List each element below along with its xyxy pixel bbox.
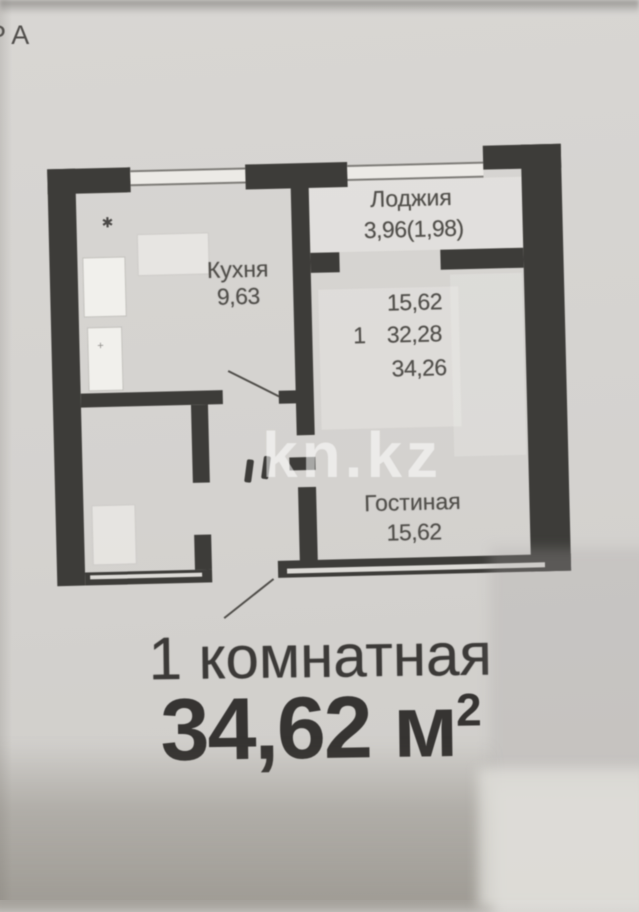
kitchen-door-swing-line bbox=[228, 370, 280, 397]
caption-area-sup: 2 bbox=[456, 683, 482, 735]
watermark: kn.kz bbox=[262, 418, 442, 492]
wall-bathroom-right-upper bbox=[191, 404, 210, 482]
summary-living-area: 15,62 bbox=[387, 288, 443, 316]
photo-shadow-bottom bbox=[0, 742, 493, 912]
loggia-window bbox=[347, 162, 483, 181]
wall-left-outer bbox=[47, 169, 85, 587]
photo-shadow-top bbox=[0, 0, 639, 14]
kitchen-area-label: 9,63 bbox=[217, 283, 260, 311]
room-floor-patch-2 bbox=[450, 273, 526, 457]
summary-total-area: 34,26 bbox=[391, 354, 447, 382]
wall-right-outer bbox=[521, 144, 571, 572]
loggia-area-label: 3,96(1,98) bbox=[363, 215, 463, 244]
entrance-door-swing-line bbox=[224, 578, 275, 619]
loggia-label: Лоджия bbox=[370, 184, 452, 213]
wall-kitchen-door-stub bbox=[279, 390, 301, 404]
kitchen-appliance-fixture bbox=[87, 327, 124, 392]
photo-shadow-right bbox=[490, 548, 639, 788]
wall-top-left bbox=[47, 167, 131, 194]
photo-light-band bbox=[478, 768, 639, 908]
loggia-sill-right bbox=[440, 248, 523, 270]
kitchen-window bbox=[130, 168, 245, 187]
kitchen-label: Кухня bbox=[207, 255, 269, 283]
summary-area-without-loggia: 32,28 bbox=[386, 320, 442, 348]
wall-bathroom-right-lower bbox=[194, 534, 212, 569]
kitchen-sink-fixture bbox=[137, 232, 210, 276]
wall-partition-lower bbox=[298, 487, 318, 565]
asterisk-marker-icon: ✱ bbox=[101, 214, 113, 231]
hall-door-mark-1 bbox=[244, 459, 254, 483]
floor-plan: ✱ + Лоджия 3,96(1,98) Кухня 9,63 15,62 1… bbox=[47, 142, 571, 586]
living-room-area-label: 15,62 bbox=[386, 518, 442, 546]
bathroom-tub-fixture bbox=[91, 504, 136, 565]
living-room-label: Гостиная bbox=[364, 488, 461, 517]
loggia-sill-left bbox=[310, 252, 339, 273]
kitchen-counter-fixture bbox=[82, 256, 126, 317]
summary-rooms-count: 1 bbox=[353, 322, 366, 349]
small-cross-marker-icon: + bbox=[97, 340, 104, 352]
